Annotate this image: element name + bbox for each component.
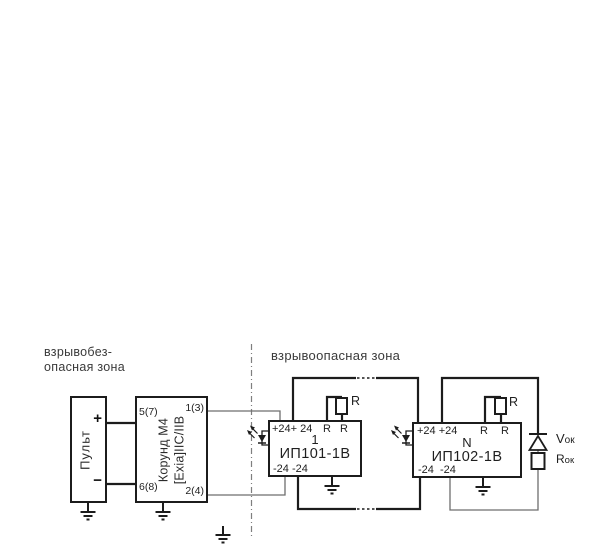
pult-plus-terminal: + <box>93 410 102 427</box>
barrier-box: Корунд М4 [Exia]IIC/IIB 5(7) 6(8) 1(3) 2… <box>135 396 208 503</box>
rok-main: R <box>556 452 565 466</box>
safe-zone-label-line2: опасная зона <box>44 360 125 375</box>
barrier-label-line2: [Exia]IIC/IIB <box>172 415 188 484</box>
moduleN-model: ИП102-1В <box>414 449 520 465</box>
module1-shunt-label: R <box>351 394 360 408</box>
led-indicator-icon <box>247 426 268 446</box>
resistor-icon <box>495 398 506 414</box>
wire-bottom-bus-right <box>376 478 420 509</box>
module1-model: ИП101-1В <box>270 446 360 462</box>
barrier-label: Корунд М4 [Exia]IIC/IIB <box>156 415 187 484</box>
terminal-1-3: 1(3) <box>185 402 204 414</box>
terminal-2-4: 2(4) <box>185 485 204 497</box>
moduleN-shunt-label: R <box>509 395 518 409</box>
terminal-5-7: 5(7) <box>139 406 158 418</box>
module1-minus24-terminals: -24 -24 <box>273 463 308 475</box>
terminal-6-8: 6(8) <box>139 481 158 493</box>
pult-label: Пульт <box>78 430 93 470</box>
barrier-label-line1: Корунд М4 <box>156 415 172 484</box>
pult-minus-terminal: − <box>93 472 102 489</box>
vok-label: Vок <box>556 431 575 446</box>
vok-sub: ок <box>565 435 575 446</box>
safe-zone-label: взрывобез- опасная зона <box>44 345 125 375</box>
moduleN-number: N <box>414 435 520 450</box>
rok-sub: ок <box>565 455 574 466</box>
wire-bottom-bus-left <box>298 477 356 509</box>
safe-zone-label-line1: взрывобез- <box>44 345 125 360</box>
moduleN-minus24-terminals: -24 -24 <box>418 464 456 476</box>
module1-box: +24+ 24 R R 1 ИП101-1В -24 -24 <box>268 420 362 477</box>
led-indicator-icon <box>391 426 412 446</box>
wire-top-bus-right <box>376 378 418 422</box>
ground-icon <box>216 526 231 543</box>
ground-icon <box>156 503 171 520</box>
resistor-icon <box>336 398 347 414</box>
schematic-canvas: взрывобез- опасная зона взрывоопасная зо… <box>0 0 600 547</box>
moduleN-box: +24 +24 R R N ИП102-1В -24 -24 <box>412 422 522 478</box>
vok-main: V <box>556 431 565 446</box>
rok-label: Rок <box>556 452 574 466</box>
hazard-zone-label: взрывоопасная зона <box>271 348 400 363</box>
resistor-icon <box>532 453 545 469</box>
pult-box: Пульт + − <box>70 396 107 503</box>
ground-icon <box>325 477 340 494</box>
diode-icon <box>529 434 547 450</box>
wire-1-3-to-module1 <box>208 411 280 420</box>
module1-number: 1 <box>270 432 360 447</box>
ground-icon <box>476 478 491 495</box>
wire-2-4-to-module1 <box>208 477 285 495</box>
ground-icon <box>81 503 96 520</box>
